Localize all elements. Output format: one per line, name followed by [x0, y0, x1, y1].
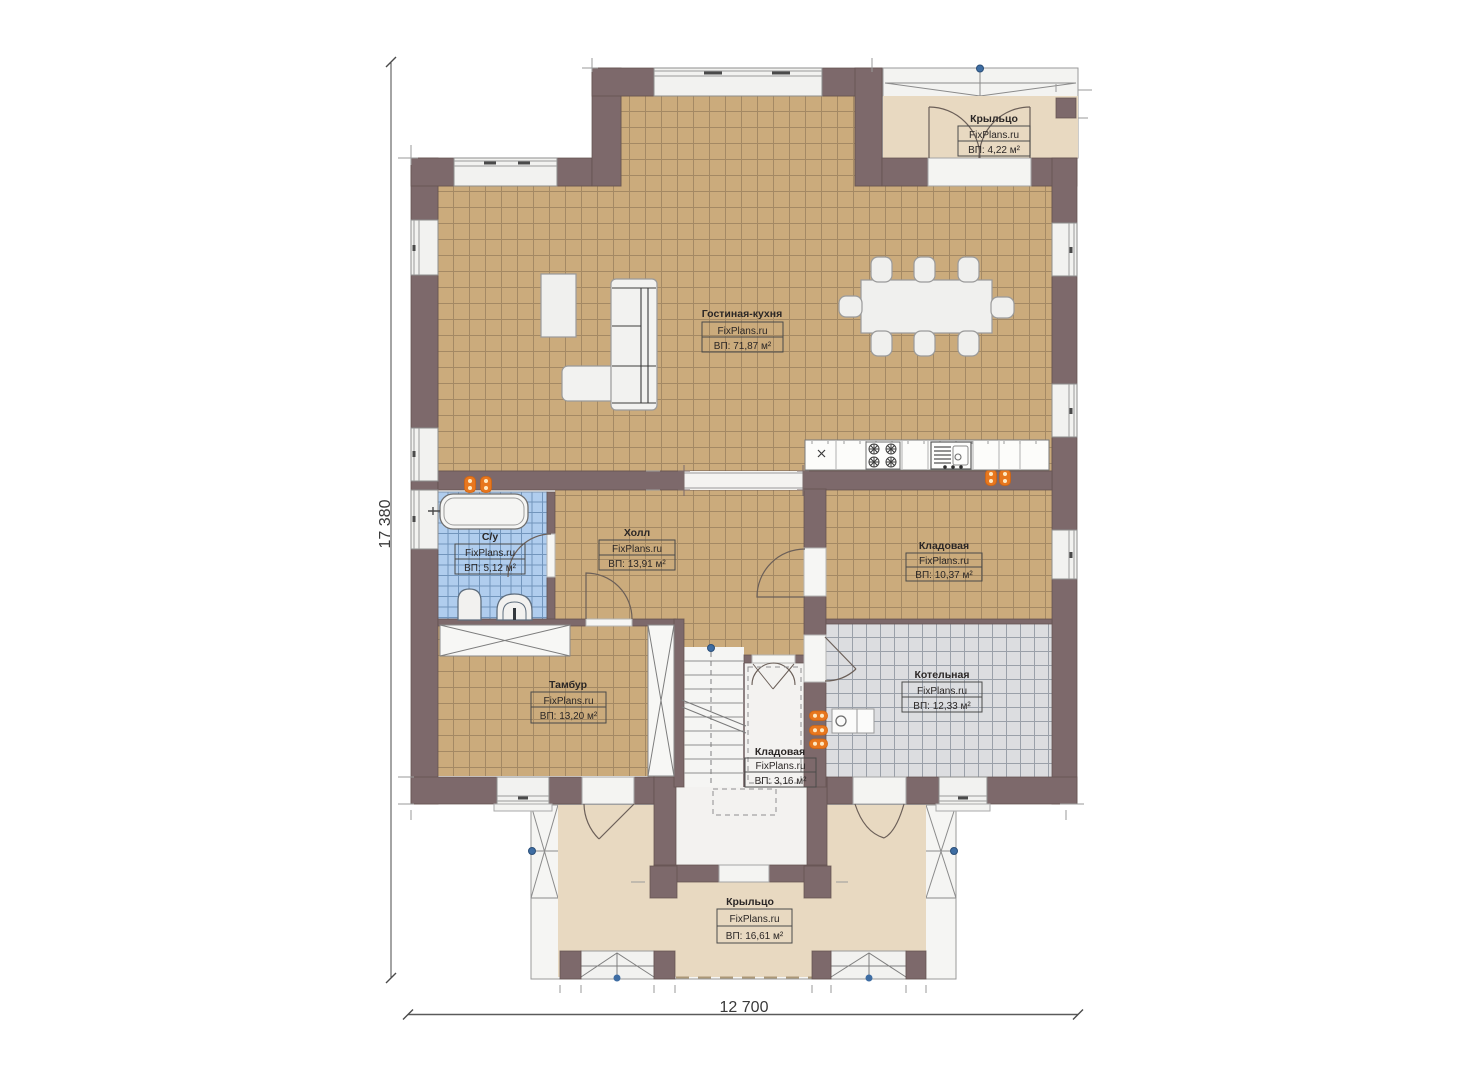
- svg-text:ВП: 13,91 м²: ВП: 13,91 м²: [608, 559, 666, 570]
- svg-text:Котельная: Котельная: [915, 669, 970, 681]
- svg-text:FixPlans.ru: FixPlans.ru: [729, 914, 779, 925]
- svg-text:ВП: 13,20 м²: ВП: 13,20 м²: [540, 711, 598, 722]
- svg-text:ВП: 3,16 м²: ВП: 3,16 м²: [755, 776, 808, 787]
- svg-text:FixPlans.ru: FixPlans.ru: [543, 696, 593, 707]
- svg-text:Холл: Холл: [624, 527, 650, 539]
- svg-text:FixPlans.ru: FixPlans.ru: [465, 548, 515, 559]
- svg-text:12 700: 12 700: [720, 999, 769, 1016]
- svg-text:ВП: 71,87 м²: ВП: 71,87 м²: [714, 341, 772, 352]
- svg-text:17 380: 17 380: [377, 499, 394, 548]
- svg-text:Кладовая: Кладовая: [755, 746, 805, 758]
- svg-text:Тамбур: Тамбур: [549, 679, 587, 691]
- svg-text:FixPlans.ru: FixPlans.ru: [969, 130, 1019, 141]
- svg-text:FixPlans.ru: FixPlans.ru: [755, 761, 805, 772]
- svg-text:FixPlans.ru: FixPlans.ru: [917, 686, 967, 697]
- svg-text:ВП: 5,12 м²: ВП: 5,12 м²: [464, 563, 517, 574]
- svg-text:FixPlans.ru: FixPlans.ru: [717, 326, 767, 337]
- svg-text:Кладовая: Кладовая: [919, 540, 969, 552]
- svg-text:FixPlans.ru: FixPlans.ru: [612, 544, 662, 555]
- svg-text:ВП: 4,22 м²: ВП: 4,22 м²: [968, 145, 1021, 156]
- svg-text:Крыльцо: Крыльцо: [726, 896, 774, 908]
- svg-text:Крыльцо: Крыльцо: [970, 113, 1018, 125]
- svg-text:FixPlans.ru: FixPlans.ru: [919, 556, 969, 567]
- svg-text:ВП: 16,61 м²: ВП: 16,61 м²: [726, 931, 784, 942]
- svg-text:Гостиная-кухня: Гостиная-кухня: [702, 308, 782, 320]
- svg-text:ВП: 12,33 м²: ВП: 12,33 м²: [913, 701, 971, 712]
- svg-text:С/у: С/у: [482, 531, 499, 543]
- svg-text:ВП: 10,37 м²: ВП: 10,37 м²: [915, 570, 973, 581]
